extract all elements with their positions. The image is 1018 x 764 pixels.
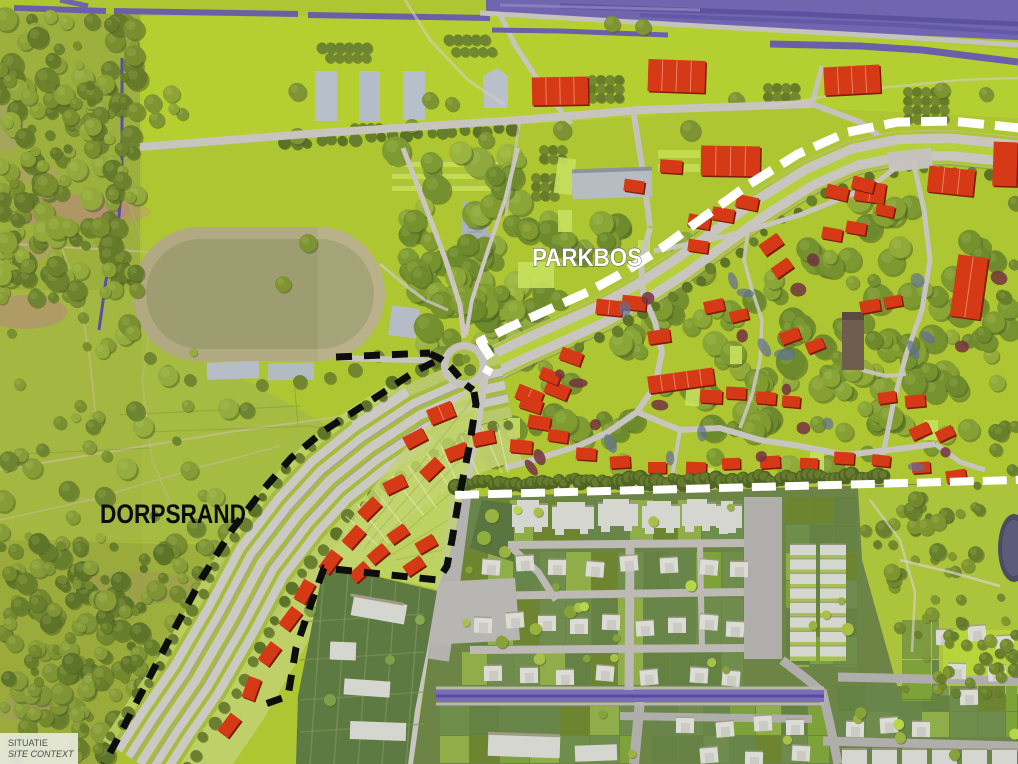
svg-text:PARKBOS: PARKBOS — [532, 244, 642, 272]
svg-text:SITE CONTEXT: SITE CONTEXT — [8, 749, 75, 759]
svg-text:DORPSRAND: DORPSRAND — [100, 499, 246, 529]
svg-text:SITUATIE: SITUATIE — [8, 738, 48, 748]
